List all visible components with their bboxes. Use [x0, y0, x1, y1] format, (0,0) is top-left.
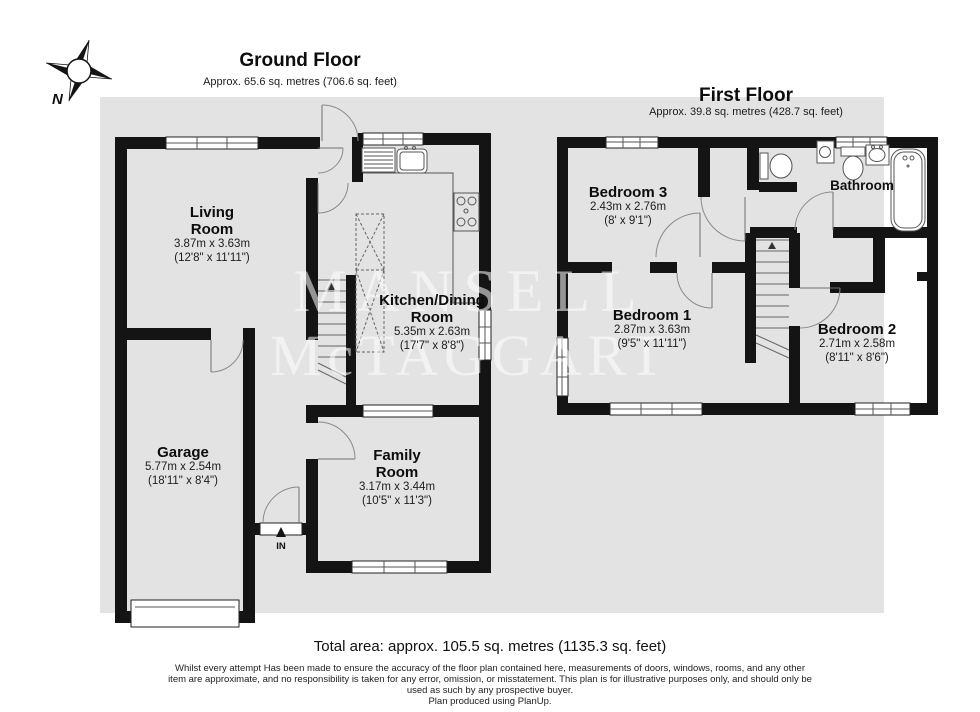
bedroom-2-label: Bedroom 2 2.71m x 2.58m (8'11" x 8'6"): [782, 321, 932, 365]
bedroom-1-side-window: [557, 338, 568, 396]
room-name: Bathroom: [812, 178, 912, 193]
room-name: Room: [347, 309, 517, 326]
room-name: Living: [137, 204, 287, 221]
room-dimensions-imperial: (17'7" x 8'8"): [347, 340, 517, 354]
room-dimensions-imperial: (9'5" x 11'11"): [577, 338, 727, 352]
room-name: Room: [137, 221, 287, 238]
room-dimensions-imperial: (18'11" x 8'4"): [108, 475, 258, 489]
room-dimensions-metric: 2.87m x 3.63m: [577, 324, 727, 338]
ground-floor-area: Approx. 65.6 sq. metres (706.6 sq. feet): [150, 76, 450, 88]
room-dimensions-imperial: (10'5" x 11'3"): [322, 495, 472, 509]
room-dimensions-metric: 2.71m x 2.58m: [782, 338, 932, 352]
room-dimensions-metric: 5.35m x 2.63m: [347, 326, 517, 340]
disclaimer-line: Plan produced using PlanUp.: [0, 696, 980, 707]
wall-basin: [817, 141, 834, 163]
bedroom-1-label: Bedroom 1 2.87m x 3.63m (9'5" x 11'11"): [577, 307, 727, 351]
room-name: Bedroom 2: [782, 321, 932, 338]
footer: Total area: approx. 105.5 sq. metres (11…: [0, 638, 980, 707]
room-name: Kitchen/Dining: [347, 292, 517, 309]
disclaimer-line: item are approximate, and no responsibil…: [0, 674, 980, 685]
toilet: [841, 147, 865, 180]
room-dimensions-metric: 3.17m x 3.44m: [322, 481, 472, 495]
room-dimensions-metric: 5.77m x 2.54m: [108, 461, 258, 475]
bedroom-1-window: [610, 403, 702, 415]
room-name: Bedroom 3: [553, 184, 703, 201]
living-room-window: [166, 137, 258, 149]
bedroom-3-window: [606, 137, 658, 148]
bedroom-3-label: Bedroom 3 2.43m x 2.76m (8' x 9'1"): [553, 184, 703, 228]
disclaimer: Whilst every attempt Has been made to en…: [0, 663, 980, 707]
room-dimensions-metric: 3.87m x 3.63m: [137, 238, 287, 252]
wc-toilet: [760, 153, 792, 179]
room-dimensions-metric: 2.43m x 2.76m: [553, 201, 703, 215]
kitchen-window: [363, 133, 423, 145]
room-name: Garage: [108, 444, 258, 461]
ground-floor-title: Ground Floor: [150, 50, 450, 72]
living-room-label: Living Room 3.87m x 3.63m (12'8" x 11'11…: [137, 204, 287, 265]
entrance-in-label: IN: [263, 541, 299, 552]
total-area-text: Total area: approx. 105.5 sq. metres (11…: [0, 638, 980, 655]
room-dimensions-imperial: (12'8" x 11'11"): [137, 252, 287, 266]
family-room-label: Family Room 3.17m x 3.44m (10'5" x 11'3"…: [322, 447, 472, 508]
disclaimer-line: Whilst every attempt Has been made to en…: [0, 663, 980, 674]
room-name: Room: [322, 464, 472, 481]
first-floor-title: First Floor: [596, 85, 896, 107]
room-name: Family: [322, 447, 472, 464]
bedroom-2-window: [855, 403, 910, 415]
bathroom-label: Bathroom: [812, 178, 912, 193]
first-floor-area: Approx. 39.8 sq. metres (428.7 sq. feet): [596, 106, 896, 118]
room-dimensions-imperial: (8' x 9'1"): [553, 215, 703, 229]
garage-door: [131, 600, 239, 627]
room-dimensions-imperial: (8'11" x 8'6"): [782, 352, 932, 366]
compass-north-label: N: [52, 91, 63, 108]
disclaimer-line: used as such by any prospective buyer.: [0, 685, 980, 696]
family-room-window: [352, 561, 447, 573]
room-name: Bedroom 1: [577, 307, 727, 324]
floorplan-page: MANSELL McTAGGART Ground Floor Approx. 6…: [0, 0, 980, 712]
vanity-sink: [866, 145, 889, 165]
kitchen-family-opening: [363, 405, 433, 417]
sink-unit: [362, 147, 427, 174]
garage-label: Garage 5.77m x 2.54m (18'11" x 8'4"): [108, 444, 258, 488]
kitchen-dining-room-label: Kitchen/Dining Room 5.35m x 2.63m (17'7"…: [347, 292, 517, 353]
